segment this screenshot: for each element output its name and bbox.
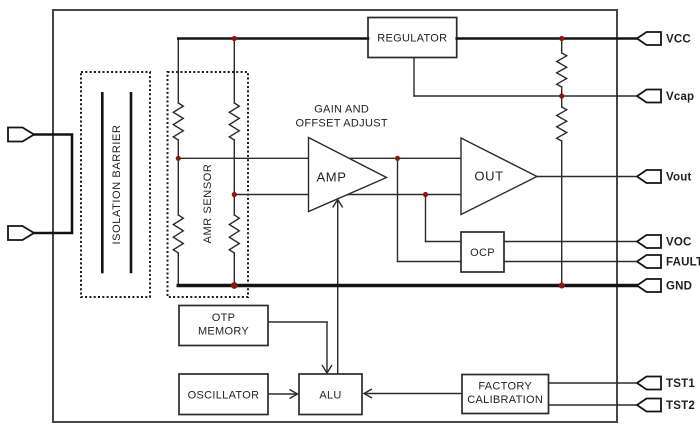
pin-vcc: VCC	[637, 32, 691, 46]
junction-dot	[559, 93, 564, 98]
gain-offset-annotation-line1: GAIN AND	[314, 104, 369, 116]
amr-sensor: AMR SENSOR	[168, 72, 249, 297]
junction-dot	[423, 192, 428, 197]
otp-memory-label-line1: OTP	[212, 312, 236, 324]
gain-offset-annotation-line2: OFFSET ADJUST	[296, 118, 388, 130]
pin-vcap: Vcap	[637, 90, 694, 104]
left-pins	[8, 128, 34, 241]
arrowheads	[290, 200, 373, 399]
pin-symbol-primary-bottom-icon	[8, 226, 34, 240]
block-diagram: ISOLATION BARRIER AMR SENSOR	[0, 0, 700, 435]
factory-calibration-label-line2: CALIBRATION	[467, 394, 543, 406]
pin-voc: VOC	[637, 235, 692, 249]
pin-label-tst1: TST1	[666, 378, 695, 390]
junction-dot	[559, 36, 564, 41]
junction-dot	[232, 36, 237, 41]
amr-sensor-label: AMR SENSOR	[202, 164, 214, 244]
pin-symbol-gnd-icon	[637, 279, 661, 292]
pin-symbol-primary-top-icon	[8, 128, 34, 142]
pin-label-fault: FAULT	[666, 257, 700, 269]
pin-label-vcap: Vcap	[666, 91, 694, 103]
otp-memory-label-line2: MEMORY	[198, 326, 249, 338]
pin-label-tst2: TST2	[666, 400, 695, 412]
pin-vout: Vout	[637, 170, 692, 184]
regulator-label: REGULATOR	[377, 33, 447, 45]
pin-label-vcc: VCC	[666, 34, 691, 46]
pin-symbol-fault-icon	[637, 255, 661, 268]
ocp-label: OCP	[470, 247, 495, 259]
pin-symbol-vcap-icon	[637, 90, 661, 103]
amp-label: AMP	[317, 170, 347, 185]
factory-calibration-label-line1: FACTORY	[478, 381, 532, 393]
pin-gnd: GND	[637, 279, 692, 293]
resistor-bridge-left-bottom	[173, 215, 183, 253]
pin-label-voc: VOC	[666, 237, 692, 249]
pin-symbol-vcc-icon	[637, 32, 661, 45]
oscillator-label: OSCILLATOR	[188, 390, 260, 402]
resistor-bridge-right-top	[229, 103, 239, 140]
resistor-divider-bottom	[557, 107, 567, 141]
junction-dot	[559, 283, 565, 289]
junction-dot	[231, 282, 238, 289]
resistors	[173, 53, 566, 253]
pin-symbol-voc-icon	[637, 235, 661, 248]
alu-label: ALU	[319, 390, 341, 402]
resistor-bridge-left-top	[173, 103, 183, 140]
out-label: OUT	[474, 169, 503, 184]
block-diagram-canvas: ISOLATION BARRIER AMR SENSOR	[0, 0, 700, 435]
resistor-bridge-right-bottom	[229, 215, 239, 253]
labels: REGULATOR GAIN AND OFFSET ADJUST AMP OUT…	[188, 33, 543, 407]
pin-symbol-tst1-icon	[637, 377, 661, 390]
pin-symbol-tst2-icon	[637, 399, 661, 412]
wires	[178, 39, 637, 406]
pin-tst2: TST2	[637, 399, 695, 413]
pin-tst1: TST1	[637, 377, 695, 391]
junction-dot	[232, 192, 237, 197]
isolation-barrier: ISOLATION BARRIER	[81, 72, 150, 297]
pin-label-vout: Vout	[666, 172, 692, 184]
resistor-divider-top	[557, 53, 567, 87]
right-pins: VCC Vcap Vout VOC FAULT GND TST1 TST2	[637, 32, 700, 412]
pin-symbol-vout-icon	[637, 170, 661, 183]
junction-dot	[395, 156, 400, 161]
pin-fault: FAULT	[637, 255, 700, 269]
isolation-barrier-label: ISOLATION BARRIER	[111, 124, 123, 244]
junction-dot	[176, 156, 181, 161]
pin-label-gnd: GND	[666, 281, 692, 293]
